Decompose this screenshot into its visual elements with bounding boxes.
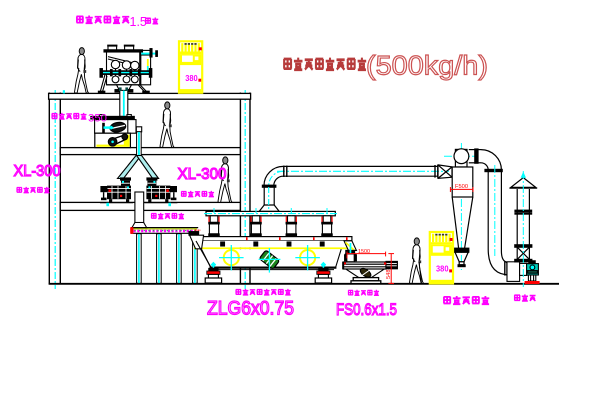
svg-text:(500kg/h): (500kg/h) — [366, 51, 488, 81]
svg-text:ZLG6x0.75: ZLG6x0.75 — [207, 299, 294, 320]
svg-text:548: 548 — [386, 269, 392, 279]
svg-text:350: 350 — [88, 113, 107, 125]
svg-text:380: 380 — [185, 74, 198, 83]
svg-text:XL-300: XL-300 — [14, 163, 61, 180]
svg-text:XL-300: XL-300 — [178, 166, 227, 183]
svg-text:1500: 1500 — [358, 249, 370, 255]
svg-text:380: 380 — [436, 265, 449, 274]
svg-text:1.5: 1.5 — [130, 15, 147, 29]
svg-text:FS0.6x1.5: FS0.6x1.5 — [336, 300, 397, 319]
